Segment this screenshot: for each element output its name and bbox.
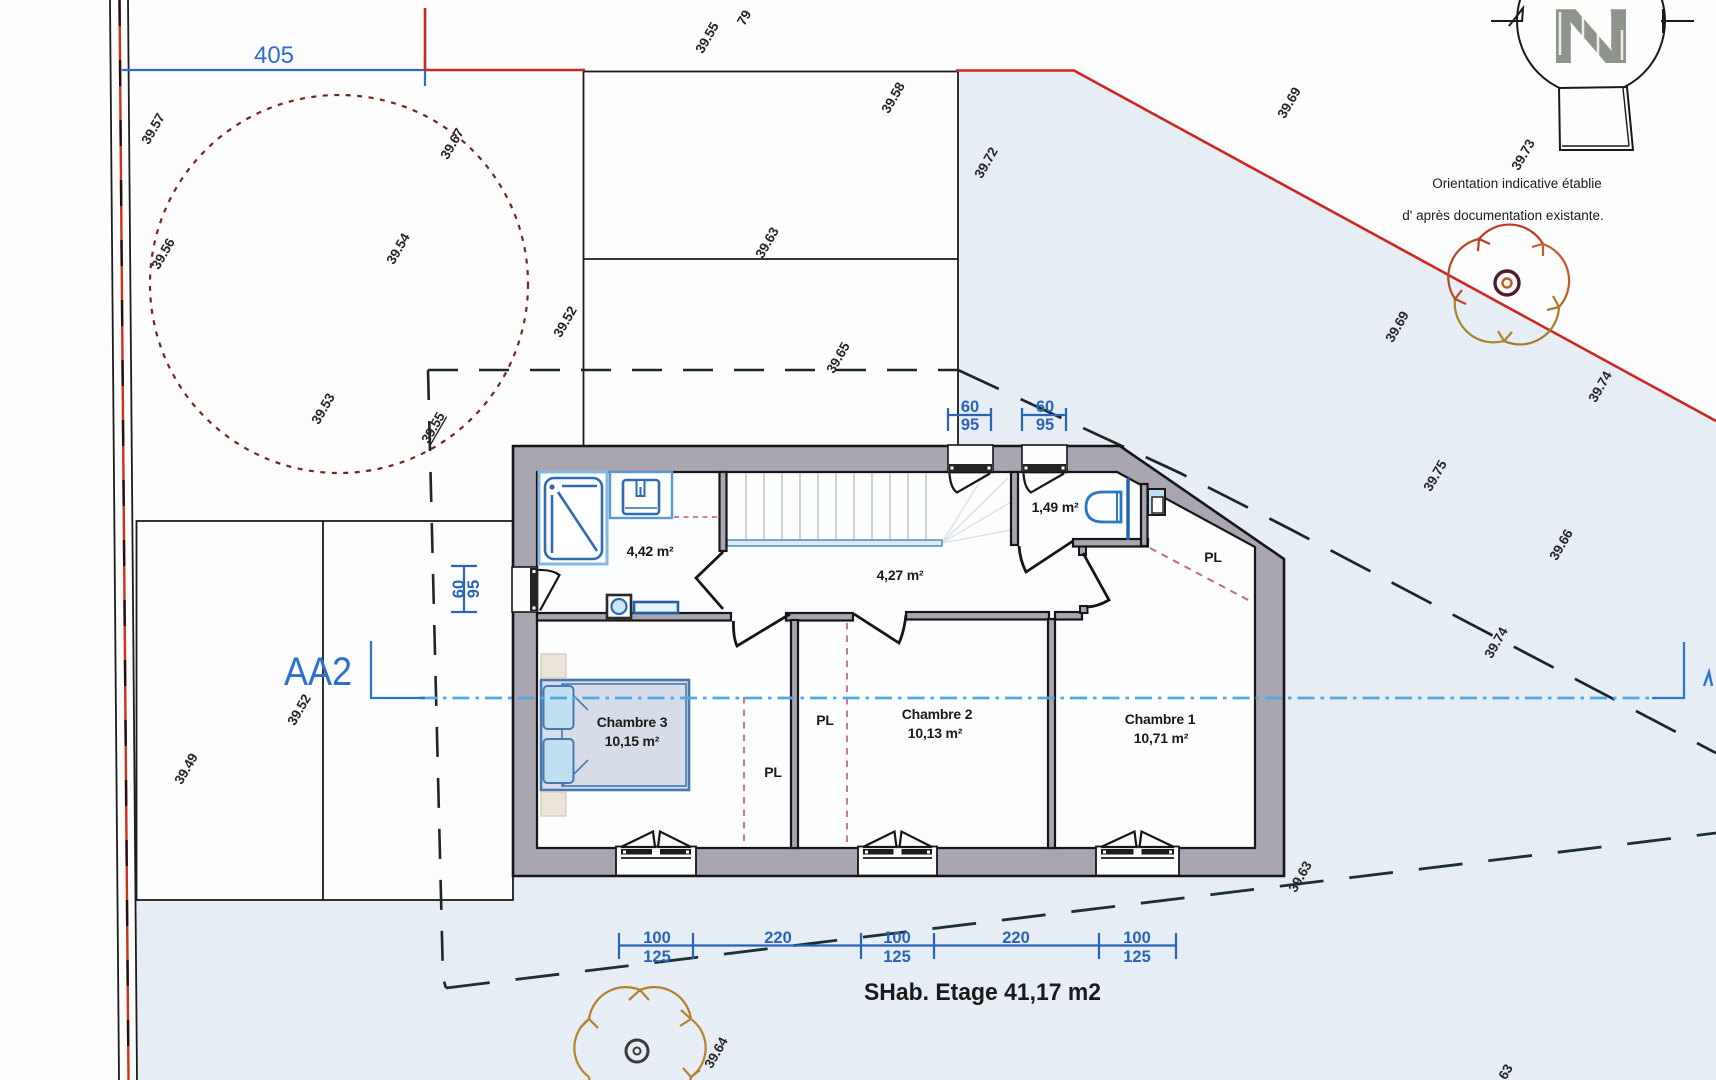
- svg-text:10,71 m²: 10,71 m²: [1134, 730, 1189, 746]
- svg-text:100: 100: [643, 929, 671, 947]
- svg-text:125: 125: [883, 948, 911, 966]
- svg-text:125: 125: [643, 948, 671, 966]
- svg-text:Chambre 2: Chambre 2: [902, 706, 973, 722]
- svg-text:10,15 m²: 10,15 m²: [605, 733, 660, 749]
- svg-text:405: 405: [254, 42, 294, 69]
- svg-text:95: 95: [1036, 416, 1054, 434]
- svg-text:4,27 m²: 4,27 m²: [877, 567, 924, 583]
- svg-text:Orientation indicative établie: Orientation indicative établie: [1432, 176, 1602, 191]
- svg-text:4,42 m²: 4,42 m²: [627, 543, 674, 559]
- svg-text:220: 220: [1002, 929, 1030, 947]
- svg-text:95: 95: [465, 580, 483, 598]
- svg-text:AA2: AA2: [284, 650, 352, 694]
- svg-text:Chambre 1: Chambre 1: [1125, 711, 1196, 727]
- svg-text:PL: PL: [816, 712, 834, 728]
- svg-text:100: 100: [883, 929, 911, 947]
- svg-text:100: 100: [1123, 929, 1151, 947]
- svg-text:d' après documentation existan: d' après documentation existante.: [1402, 208, 1603, 223]
- svg-text:125: 125: [1123, 948, 1151, 966]
- svg-text:60: 60: [961, 398, 979, 416]
- svg-text:Chambre 3: Chambre 3: [597, 714, 668, 730]
- svg-text:SHab. Etage 41,17 m2: SHab. Etage 41,17 m2: [864, 979, 1101, 1006]
- svg-text:95: 95: [961, 416, 979, 434]
- svg-text:1,49 m²: 1,49 m²: [1032, 499, 1079, 515]
- svg-text:10,13 m²: 10,13 m²: [908, 725, 963, 741]
- svg-text:PL: PL: [1204, 549, 1222, 565]
- svg-text:PL: PL: [764, 764, 782, 780]
- svg-text:220: 220: [764, 929, 792, 947]
- svg-text:60: 60: [1036, 398, 1054, 416]
